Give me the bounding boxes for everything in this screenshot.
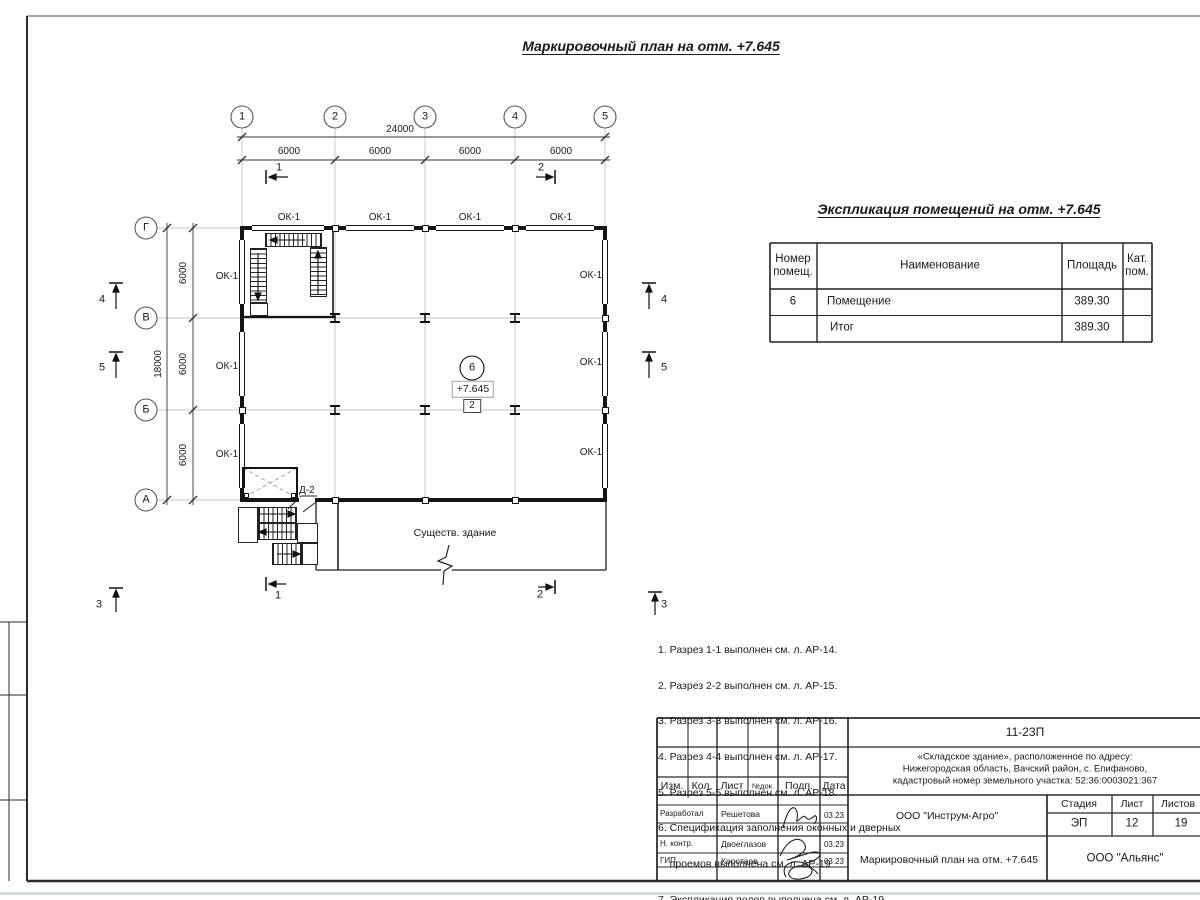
tb-sheet-label: Лист (1121, 799, 1144, 810)
building-outline (240, 226, 607, 502)
note-line: 3. Разрез 3-3 выполнен см. л. АР-16. (658, 716, 901, 728)
stair-flight (250, 248, 267, 303)
tb-col-data: Дата (822, 781, 845, 792)
tb-col-list: Лист (721, 781, 744, 792)
rooms-table-header-name: Наименование (900, 260, 980, 272)
existing-building-lines (316, 502, 606, 585)
tb-org: ООО "Инструм-Агро" (896, 811, 998, 822)
window-mark-label: ОК-1 (459, 213, 482, 223)
pilaster (332, 497, 339, 504)
door-opening (299, 497, 315, 503)
pilaster (332, 225, 339, 232)
window-mark-label: ОК-1 (580, 358, 603, 368)
axis-col-label: 5 (602, 112, 608, 123)
room-row-name: Итог (830, 322, 854, 334)
window-opening (526, 225, 594, 231)
tb-sheets-label: Листов (1161, 799, 1195, 810)
dim-bay: 6000 (179, 262, 189, 284)
tb-stage-value: ЭП (1071, 818, 1088, 830)
window-mark-label: ОК-1 (216, 272, 239, 282)
pilaster (422, 497, 429, 504)
window-opening (239, 240, 245, 304)
tb-org2: ООО "Альянс" (1087, 853, 1164, 865)
window-mark-label: ОК-1 (216, 362, 239, 372)
section-label-2: 2 (538, 163, 544, 174)
stair-flight (265, 233, 322, 247)
axis-col-label: 4 (512, 112, 518, 123)
pilaster (512, 225, 519, 232)
axis-row-label: В (142, 313, 149, 324)
tb-col-ndok: №док. (752, 782, 774, 790)
section-label-4: 4 (661, 295, 667, 306)
window-mark-label: ОК-1 (216, 450, 239, 460)
dim-bay: 6000 (550, 147, 572, 157)
stair-flight (272, 543, 302, 565)
tb-name: Двоеглазов (721, 840, 766, 849)
tb-sheets-value: 19 (1175, 818, 1188, 830)
rooms-table-header-cat: Кат. пом. (1121, 253, 1153, 279)
window-mark-label: ОК-1 (278, 213, 301, 223)
dim-total-width: 24000 (386, 125, 414, 135)
window-mark-label: ОК-1 (369, 213, 392, 223)
tb-stage-label: Стадия (1061, 799, 1097, 810)
stair-flight (258, 523, 297, 540)
rooms-table-header-num: Номер помещ. (770, 253, 816, 279)
pilaster (602, 315, 609, 322)
window-opening (602, 332, 608, 396)
object-address-line: кадастровый номер земельного участка: 52… (893, 776, 1157, 786)
room-row-area: 389.30 (1074, 296, 1109, 308)
tb-col-izm: Изм. (661, 781, 684, 792)
note-line: 1. Разрез 1-1 выполнен см. л. АР-14. (658, 645, 901, 657)
shaft-pad (291, 493, 296, 498)
tb-role: Разработал (660, 810, 704, 818)
dim-bay: 6000 (278, 147, 300, 157)
rooms-table-header-area: Площадь (1067, 260, 1117, 272)
room-row-number: 6 (790, 296, 796, 308)
existing-building-label: Существ. здание (414, 528, 497, 539)
tb-role: Н. контр. (660, 840, 693, 848)
object-address-line: «Складское здание», расположенное по адр… (918, 752, 1133, 762)
stair-flight (310, 247, 327, 297)
shaft-pad (244, 493, 249, 498)
drawing-title: Маркировочный план на отм. +7.645 (522, 39, 780, 53)
stair-landing (297, 523, 318, 543)
stair-landing (238, 507, 258, 543)
axis-col-label: 1 (239, 112, 245, 123)
dim-bay: 6000 (179, 353, 189, 375)
project-code: 11-23П (1006, 726, 1044, 738)
section-label-3: 3 (661, 600, 667, 611)
tb-sheet-value: 12 (1126, 818, 1139, 830)
dim-bay: 6000 (179, 444, 189, 466)
section-label-4: 4 (99, 295, 105, 306)
window-mark-label: ОК-1 (580, 271, 603, 281)
tb-date: 03.23 (824, 841, 844, 849)
note-line: 7. Экспликация полов выполнена см. л. АР… (658, 895, 901, 900)
note-line: 4. Разрез 4-4 выполнен см. л. АР-17. (658, 752, 901, 764)
section-label-1: 1 (275, 591, 281, 602)
axis-col-label: 3 (422, 112, 428, 123)
dim-total-height: 18000 (154, 350, 164, 378)
section-label-2: 2 (537, 590, 543, 601)
window-opening (252, 225, 324, 231)
room-elevation-tag: +7.645 (452, 381, 494, 398)
room-row-name: Помещение (827, 296, 891, 308)
tb-name: Коротаев (721, 857, 758, 866)
tb-col-podp: Подп. (785, 781, 813, 792)
section-label-1: 1 (276, 163, 282, 174)
room-number: 6 (469, 363, 475, 374)
window-mark-label: ОК-1 (580, 448, 603, 458)
pilaster (422, 225, 429, 232)
elevator-shaft (242, 467, 298, 500)
pilaster (239, 407, 246, 414)
window-opening (602, 240, 608, 304)
stair-landing (250, 303, 268, 316)
window-opening (239, 332, 245, 396)
tb-name: Решетова (721, 810, 760, 819)
section-label-5: 5 (661, 363, 667, 374)
axis-col-label: 2 (332, 112, 338, 123)
tb-date: 03.23 (824, 812, 844, 820)
dim-bay: 6000 (459, 147, 481, 157)
tb-col-kol: Кол. (692, 781, 713, 792)
section-label-3: 3 (96, 600, 102, 611)
tb-date: 03.23 (824, 858, 844, 866)
dim-bay: 6000 (369, 147, 391, 157)
drawing-sheet: Маркировочный план на отм. +7.645 Экспли… (0, 0, 1200, 900)
object-address-line: Нижегородская область, Вачский район, с.… (903, 764, 1147, 774)
room-row-area: 389.30 (1074, 322, 1109, 334)
window-mark-label: ОК-1 (550, 213, 573, 223)
room-zone-tag: 2 (463, 399, 481, 413)
axis-row-label: А (142, 495, 149, 506)
window-opening (602, 424, 608, 488)
window-opening (436, 225, 504, 231)
axis-row-label: Г (143, 223, 149, 234)
axis-row-label: Б (142, 405, 149, 416)
window-opening (346, 225, 414, 231)
tb-doc-title: Маркировочный план на отм. +7.645 (860, 855, 1038, 866)
note-line: 6. Спецификация заполнения оконных и две… (658, 823, 901, 835)
pilaster (512, 497, 519, 504)
rooms-table-title: Экспликация помещений на отм. +7.645 (817, 202, 1100, 216)
pilaster (602, 407, 609, 414)
stair-landing (302, 543, 318, 565)
door-mark-label: Д-2 (299, 486, 315, 496)
stair-flight (258, 507, 297, 523)
section-label-5: 5 (99, 363, 105, 374)
tb-role: ГИП (660, 857, 676, 865)
note-line: 2. Разрез 2-2 выполнен см. л. АР-15. (658, 681, 901, 693)
